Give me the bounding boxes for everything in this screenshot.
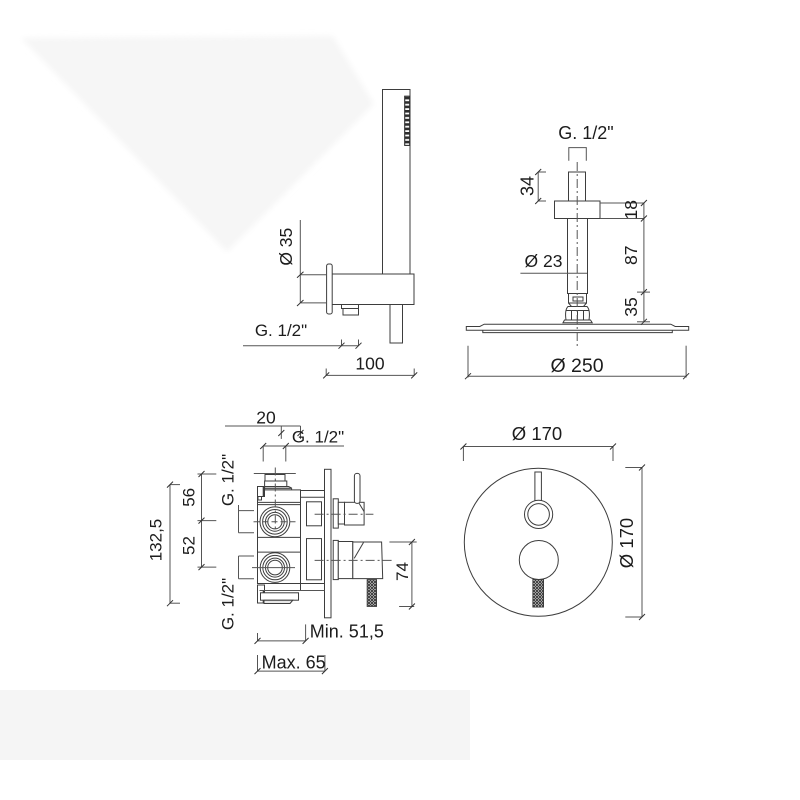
svg-text:Max. 65: Max. 65: [262, 653, 326, 673]
svg-text:132,5: 132,5: [146, 519, 165, 562]
svg-text:G. 1/2": G. 1/2": [292, 428, 344, 447]
svg-text:Ø 23: Ø 23: [525, 251, 563, 271]
svg-text:Ø 170: Ø 170: [616, 518, 637, 568]
svg-text:Ø 35: Ø 35: [276, 228, 296, 266]
svg-text:56: 56: [179, 488, 198, 507]
svg-text:20: 20: [256, 408, 276, 428]
svg-text:87: 87: [621, 246, 641, 265]
svg-text:G. 1/2": G. 1/2": [218, 454, 237, 506]
svg-text:35: 35: [621, 297, 641, 316]
svg-text:34: 34: [517, 176, 537, 196]
svg-text:G. 1/2": G. 1/2": [255, 321, 307, 340]
svg-text:Ø 170: Ø 170: [512, 423, 562, 444]
svg-text:52: 52: [179, 536, 198, 555]
svg-text:100: 100: [355, 354, 384, 374]
svg-text:74: 74: [393, 562, 412, 581]
svg-text:Ø 250: Ø 250: [550, 355, 603, 377]
svg-text:Min. 51,5: Min. 51,5: [310, 622, 384, 642]
svg-text:18: 18: [621, 200, 641, 219]
svg-text:G. 1/2": G. 1/2": [558, 123, 613, 143]
svg-text:G. 1/2": G. 1/2": [218, 578, 237, 630]
